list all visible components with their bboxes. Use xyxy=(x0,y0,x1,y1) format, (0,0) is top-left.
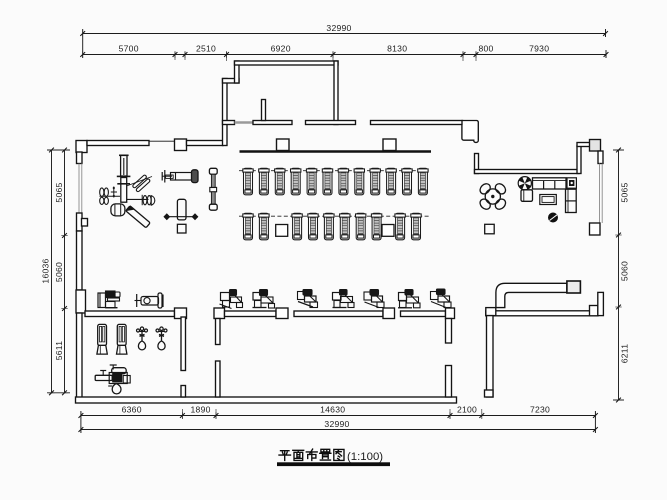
svg-text:7230: 7230 xyxy=(530,404,550,414)
svg-text:(1:100): (1:100) xyxy=(347,451,383,463)
svg-text:5060: 5060 xyxy=(620,261,630,281)
svg-text:800: 800 xyxy=(478,44,493,54)
svg-text:5065: 5065 xyxy=(54,182,64,202)
svg-text:2100: 2100 xyxy=(457,404,477,414)
svg-text:5700: 5700 xyxy=(119,44,139,54)
svg-text:6360: 6360 xyxy=(122,404,142,414)
svg-text:5060: 5060 xyxy=(54,262,64,282)
svg-text:16036: 16036 xyxy=(41,258,51,283)
svg-text:1890: 1890 xyxy=(191,404,211,414)
svg-text:8130: 8130 xyxy=(387,44,407,54)
svg-text:5065: 5065 xyxy=(620,182,630,202)
svg-text:14630: 14630 xyxy=(320,404,345,414)
svg-text:7930: 7930 xyxy=(529,44,549,54)
svg-text:5611: 5611 xyxy=(54,341,64,360)
svg-text:32990: 32990 xyxy=(326,23,351,33)
svg-text:6211: 6211 xyxy=(620,344,630,363)
svg-text:32990: 32990 xyxy=(324,419,349,429)
svg-text:2510: 2510 xyxy=(196,44,216,54)
svg-text:6920: 6920 xyxy=(271,44,291,54)
